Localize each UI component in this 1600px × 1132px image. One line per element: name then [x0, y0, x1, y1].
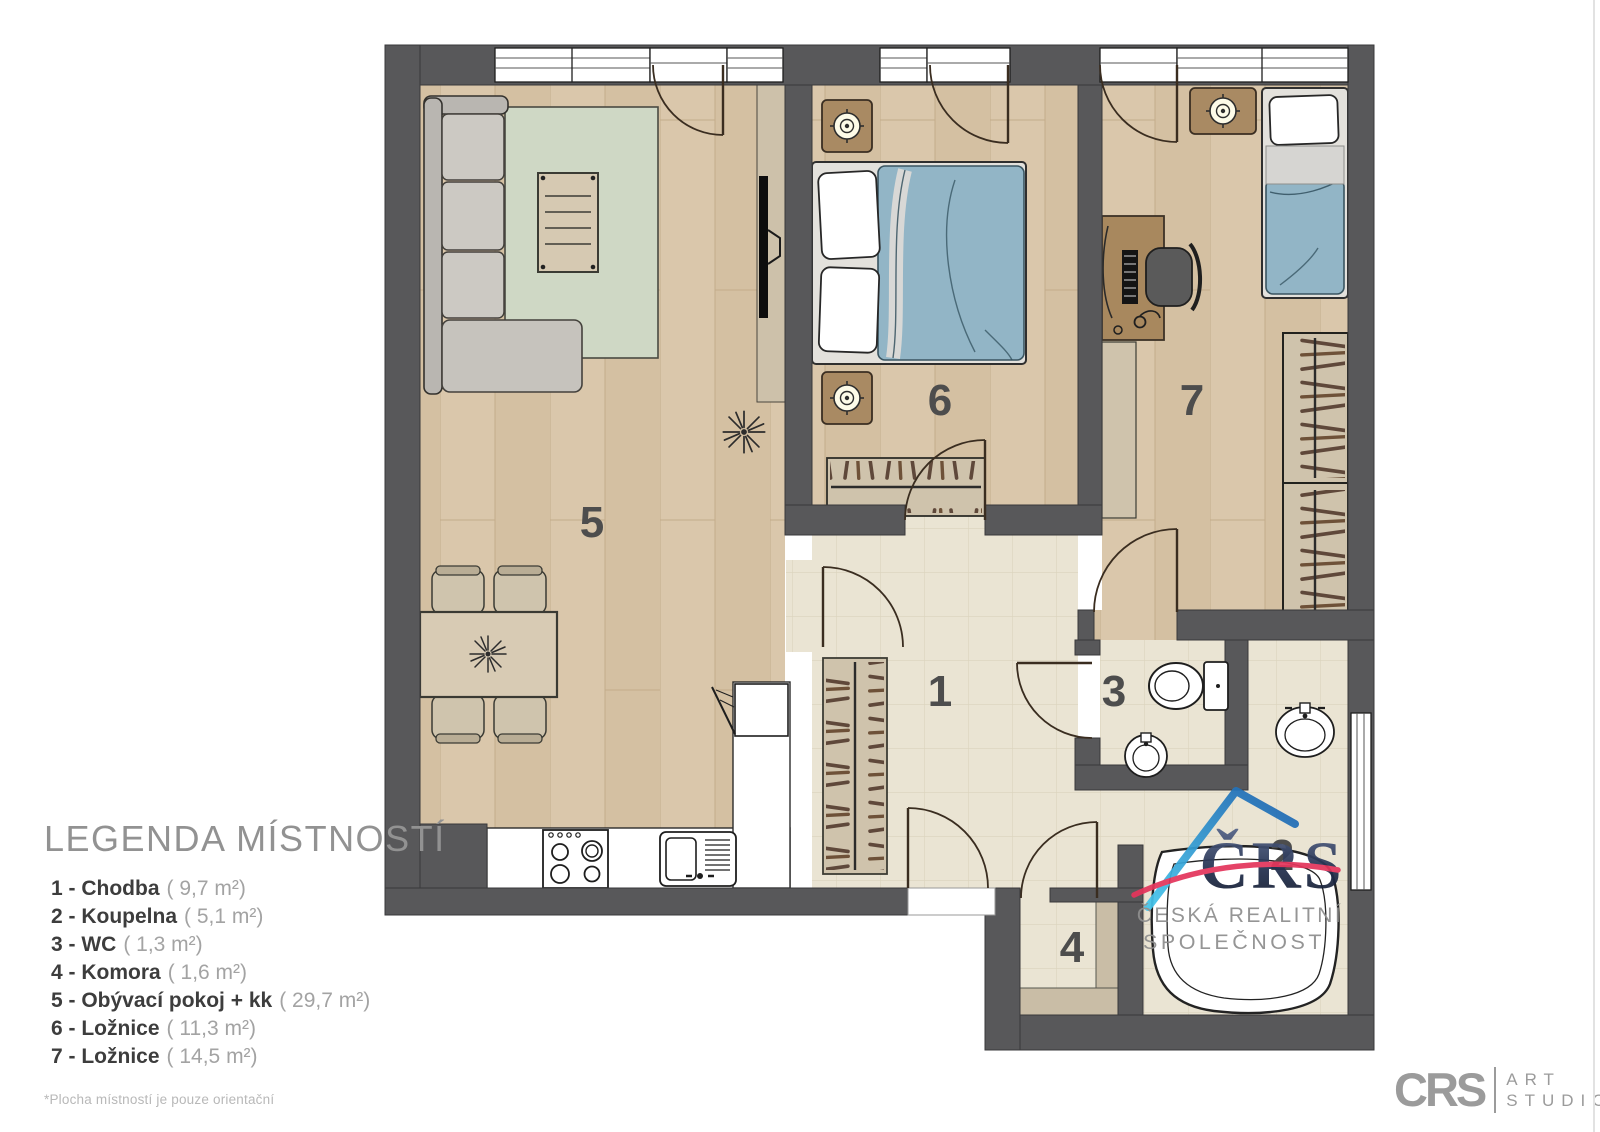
legend-item: 6 - Ložnice( 11,3 m²) — [51, 1015, 474, 1043]
entrance-doorway — [908, 888, 995, 915]
watermark-line2: SPOLEČNOST — [1143, 929, 1325, 954]
tv-cabinet — [757, 85, 785, 402]
legend-list: 1 - Chodba( 9,7 m²) 2 - Koupelna( 5,1 m²… — [44, 875, 474, 1071]
dining-chair — [494, 695, 546, 739]
legend-item-label: 6 - Ložnice — [51, 1017, 160, 1040]
dining-chair — [432, 570, 484, 614]
pillow — [818, 171, 880, 260]
table-plant-icon — [470, 636, 506, 672]
studio-divider — [1494, 1067, 1496, 1113]
legend-item-area: ( 29,7 m²) — [279, 989, 370, 1012]
page-edge-line — [1593, 0, 1595, 1132]
legend-item-label: 1 - Chodba — [51, 877, 160, 900]
room-label-7: 7 — [1180, 376, 1204, 425]
room-label-6: 6 — [928, 376, 952, 425]
studio-text: ART STUDIO — [1506, 1069, 1600, 1111]
legend-item: 1 - Chodba( 9,7 m²) — [51, 875, 474, 903]
pillow — [819, 267, 880, 353]
room-label-3: 3 — [1102, 667, 1126, 716]
toilet — [1149, 662, 1228, 710]
legend-footnote: *Plocha místností je pouze orientační — [44, 1092, 474, 1107]
legend-item-area: ( 5,1 m²) — [184, 905, 263, 928]
coffee-table — [538, 173, 598, 272]
single-bed — [1262, 88, 1348, 298]
legend-title: LEGENDA MÍSTNOSTÍ — [44, 818, 474, 860]
studio-line2: STUDIO — [1506, 1090, 1600, 1111]
legend-item-area: ( 14,5 m²) — [167, 1045, 258, 1068]
legend-item: 4 - Komora( 1,6 m²) — [51, 959, 474, 987]
room-label-5: 5 — [580, 498, 604, 547]
studio-line1: ART — [1506, 1069, 1600, 1090]
watermark-line1: ČESKÁ REALITNÍ — [1137, 904, 1344, 927]
crs-art-studio-logo: CRS ART STUDIO — [1394, 1066, 1600, 1113]
kitchen-sink — [660, 832, 736, 886]
legend-item-area: ( 11,3 m²) — [167, 1017, 256, 1040]
balcony-door — [650, 48, 727, 82]
dining-chair — [432, 695, 484, 739]
hallway-closet — [823, 658, 887, 874]
legend-item-label: 2 - Koupelna — [51, 905, 177, 928]
legend-item-area: ( 1,3 m²) — [123, 933, 202, 956]
pillow — [1269, 95, 1339, 145]
window — [880, 48, 927, 82]
room-label-4: 4 — [1060, 923, 1085, 972]
legend-item: 7 - Ložnice( 14,5 m²) — [51, 1043, 474, 1071]
stove — [543, 830, 608, 888]
wardrobe-7 — [1283, 333, 1348, 633]
nightstand — [822, 100, 872, 152]
dresser — [1102, 342, 1136, 518]
double-bed — [812, 162, 1026, 364]
legend-item-area: ( 1,6 m²) — [168, 961, 247, 984]
tv — [759, 176, 768, 318]
legend-item: 3 - WC( 1,3 m²) — [51, 931, 474, 959]
dining-chair — [494, 570, 546, 614]
balcony-door — [1100, 48, 1177, 82]
legend-item: 5 - Obývací pokoj + kk( 29,7 m²) — [51, 987, 474, 1015]
legend: LEGENDA MÍSTNOSTÍ 1 - Chodba( 9,7 m²) 2 … — [44, 818, 474, 1107]
nightstand — [822, 372, 872, 424]
legend-item-label: 3 - WC — [51, 933, 116, 956]
studio-brand: CRS — [1394, 1066, 1484, 1113]
legend-item: 2 - Koupelna( 5,1 m²) — [51, 903, 474, 931]
floor-plant-icon — [723, 411, 764, 452]
room-label-1: 1 — [928, 667, 952, 716]
balcony-door — [927, 48, 1010, 82]
legend-item-label: 4 - Komora — [51, 961, 161, 984]
bathroom-window — [1351, 713, 1371, 890]
window — [495, 48, 650, 82]
legend-item-label: 7 - Ložnice — [51, 1045, 160, 1068]
nightstand — [1190, 88, 1256, 134]
window — [727, 48, 783, 82]
legend-item-area: ( 9,7 m²) — [167, 877, 246, 900]
window — [1177, 48, 1348, 82]
legend-item-label: 5 - Obývací pokoj + kk — [51, 989, 272, 1012]
